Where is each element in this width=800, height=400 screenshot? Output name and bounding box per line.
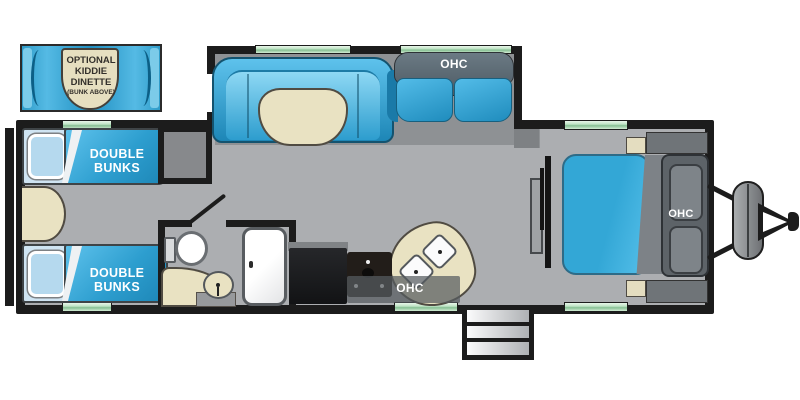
bathroom-wall-top: [158, 220, 192, 227]
propane-tank-divider: [747, 184, 749, 257]
callout-line-1: OPTIONAL: [20, 55, 162, 66]
stove-burner: [366, 260, 370, 264]
refrigerator: [289, 248, 347, 304]
u-dinette-seam-right: [357, 74, 359, 138]
window-bunk-bottom: [62, 302, 112, 312]
toilet: [175, 231, 208, 266]
window-bedroom-top: [564, 120, 628, 130]
callout-line-4: (BUNK ABOVE): [20, 88, 162, 97]
queen-bed: [562, 154, 650, 275]
tv: [545, 156, 551, 268]
wardrobe: [164, 132, 206, 178]
nightstand-top: [626, 137, 646, 154]
nightstand-bottom: [626, 280, 646, 297]
travel-trailer-floorplan: OPTIONAL KIDDIE DINETTE (BUNK ABOVE) DOU…: [0, 0, 800, 400]
kitchen-sink-drain: [414, 270, 418, 274]
window-bedroom-bottom: [564, 302, 628, 312]
window-dinette-top: [255, 45, 351, 54]
bunk-bottom-pillow: [28, 251, 66, 297]
u-dinette-seam-left: [247, 74, 249, 138]
bedroom-corner-cabinet: [514, 129, 539, 148]
rear-bumper: [5, 128, 14, 306]
bunk-top-pillow: [28, 134, 66, 179]
u-dinette-table: [258, 88, 348, 146]
hitch-coupler: [788, 212, 799, 231]
kitchen-sink-drain: [438, 250, 442, 254]
shower-door-handle: [249, 261, 253, 268]
bedroom-cabinet-bottom: [646, 280, 708, 303]
bunk-room-seat: [22, 186, 66, 242]
bunk-top-label: DOUBLE BUNKS: [66, 147, 168, 175]
bedroom-ohc-label: OHC: [659, 208, 703, 220]
tv-mount: [540, 168, 544, 230]
sofa-ohc-label: OHC: [424, 57, 484, 71]
entry-step: [467, 310, 529, 322]
bedroom-cabinet-top: [646, 132, 708, 154]
sofa-cushion-right: [454, 78, 512, 122]
kiddie-dinette-label: OPTIONAL KIDDIE DINETTE (BUNK ABOVE): [20, 55, 162, 97]
kitchen-ohc-label: OHC: [380, 281, 440, 295]
bed-pillow-bottom: [669, 226, 703, 274]
shower-wall-top: [226, 220, 296, 227]
callout-line-3: DINETTE: [20, 77, 162, 88]
entry-step: [467, 326, 529, 338]
entry-step: [467, 342, 529, 355]
callout-line-2: KIDDIE: [20, 66, 162, 77]
bathroom-faucet-spout: [217, 287, 219, 296]
sofa-cushion-left: [396, 78, 453, 122]
bunk-bottom-label: DOUBLE BUNKS: [66, 266, 168, 294]
